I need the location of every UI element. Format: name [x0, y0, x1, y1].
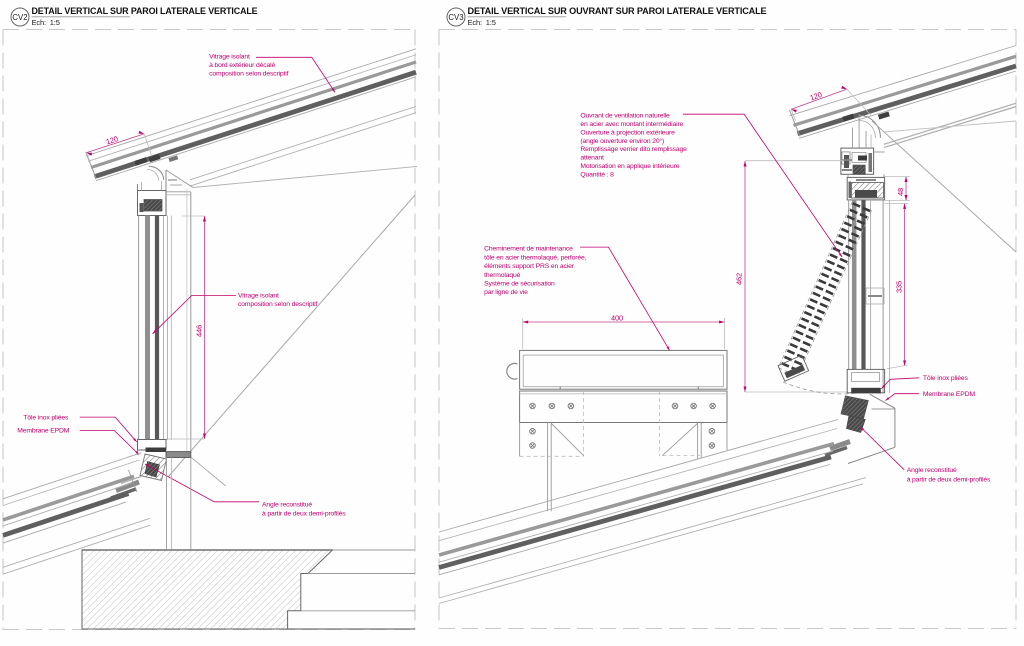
svg-text:446: 446 [195, 325, 204, 337]
svg-text:tôle en acier thermolaqué, per: tôle en acier thermolaqué, perforée, [484, 254, 587, 261]
svg-text:Angle reconstitué: Angle reconstitué [907, 467, 957, 474]
svg-text:Membrane EPDM: Membrane EPDM [17, 428, 70, 435]
svg-text:DETAIL VERTICAL SUR OUVRANT SU: DETAIL VERTICAL SUR OUVRANT SUR PAROI LA… [468, 6, 768, 17]
svg-text:Système de sécurisation: Système de sécurisation [484, 281, 555, 288]
svg-text:Ouverture à projection extérie: Ouverture à projection extérieure [580, 129, 675, 136]
svg-text:Ouvrant de ventilation naturel: Ouvrant de ventilation naturelle [580, 112, 670, 119]
svg-text:Tôle inox pliées: Tôle inox pliées [923, 375, 969, 382]
svg-text:à bord extérieur décalé: à bord extérieur décalé [209, 62, 275, 69]
svg-text:éléments support PRS en acier: éléments support PRS en acier [484, 263, 575, 270]
svg-text:à partir de deux demi-profilés: à partir de deux demi-profilés [907, 477, 991, 484]
svg-text:CV2: CV2 [12, 13, 27, 22]
svg-text:48: 48 [896, 188, 905, 196]
svg-text:(angle ouverture environ 20°): (angle ouverture environ 20°) [580, 137, 664, 145]
svg-text:composition selon descriptif: composition selon descriptif [238, 301, 318, 308]
svg-text:à partir de deux demi-profilés: à partir de deux demi-profilés [262, 511, 346, 518]
svg-text:Vitrage isolant: Vitrage isolant [238, 293, 279, 300]
svg-text:thermolaqué: thermolaqué [484, 272, 521, 279]
svg-text:Motorisation en applique intér: Motorisation en applique intérieure [580, 163, 679, 170]
svg-text:composition selon descriptif: composition selon descriptif [209, 70, 289, 77]
svg-text:Angle reconstitué: Angle reconstitué [262, 502, 312, 509]
svg-text:en acier avec montant interméd: en acier avec montant intermédiaire [580, 121, 683, 128]
svg-text:335: 335 [895, 281, 904, 293]
svg-text:DETAIL VERTICAL SUR PAROI LATE: DETAIL VERTICAL SUR PAROI LATERALE VERTI… [32, 6, 259, 17]
svg-text:462: 462 [735, 273, 744, 285]
svg-text:Cheminement de maintenance: Cheminement de maintenance [484, 246, 573, 253]
svg-text:Tôle inox pliées: Tôle inox pliées [23, 414, 69, 421]
svg-text:Quantité : 8: Quantité : 8 [580, 172, 614, 179]
svg-text:Vitrage isolant: Vitrage isolant [209, 53, 250, 60]
svg-text:Ech: 1:5: Ech: 1:5 [468, 18, 496, 27]
svg-text:par ligne de vie: par ligne de vie [484, 289, 528, 296]
svg-text:Remplissage verrier dito rempl: Remplissage verrier dito remplissage [580, 146, 687, 153]
svg-text:CV3: CV3 [448, 13, 463, 22]
svg-text:Ech: 1:5: Ech: 1:5 [32, 18, 60, 27]
svg-text:attenant: attenant [580, 155, 604, 162]
svg-text:Membrane EPDM: Membrane EPDM [923, 391, 976, 398]
svg-text:400: 400 [611, 313, 623, 322]
